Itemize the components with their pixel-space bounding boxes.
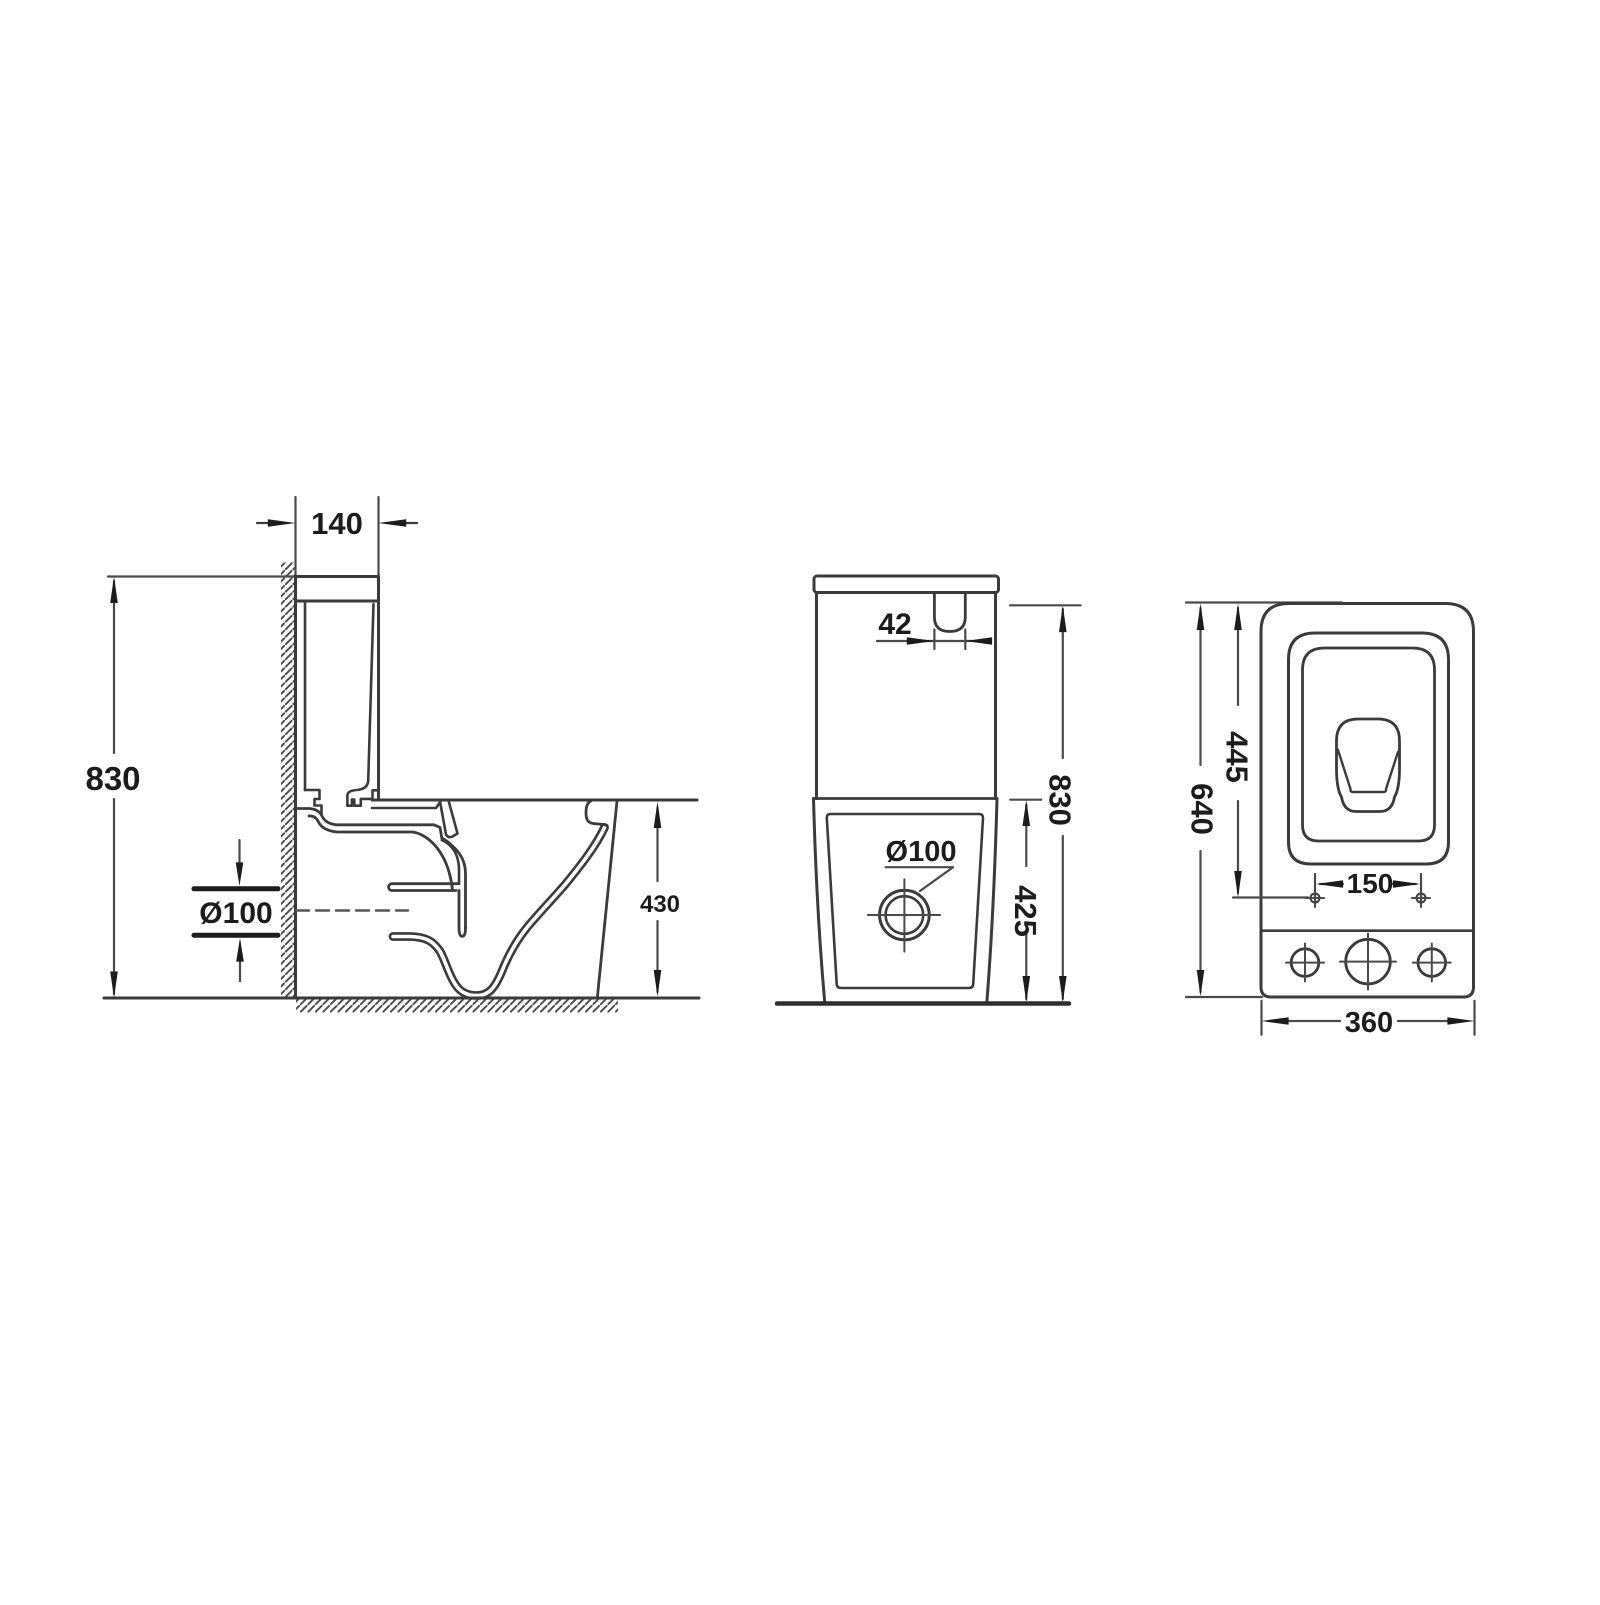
svg-text:150: 150 (1347, 868, 1394, 899)
svg-text:42: 42 (878, 608, 911, 641)
svg-text:830: 830 (85, 760, 140, 797)
svg-text:140: 140 (311, 506, 363, 541)
svg-text:830: 830 (1043, 774, 1078, 826)
svg-text:425: 425 (1008, 885, 1043, 937)
svg-text:430: 430 (640, 891, 680, 918)
svg-text:445: 445 (1220, 731, 1255, 783)
svg-text:Ø100: Ø100 (199, 897, 272, 930)
svg-text:360: 360 (1345, 1007, 1393, 1039)
svg-text:640: 640 (1185, 783, 1220, 835)
svg-text:Ø100: Ø100 (886, 836, 957, 868)
